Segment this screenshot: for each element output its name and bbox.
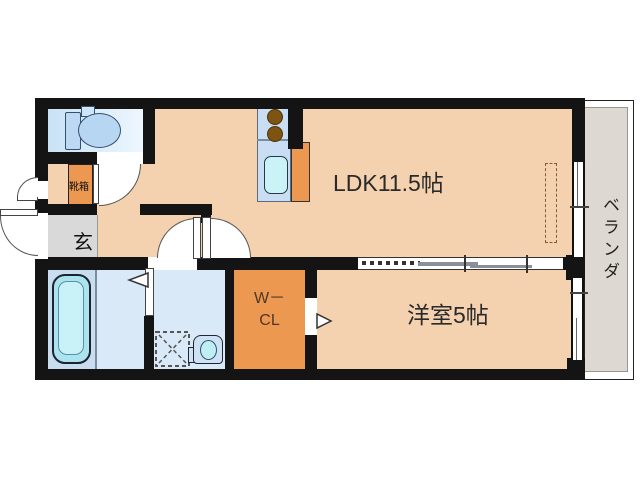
kitchen-sink-icon <box>264 156 288 194</box>
wall-segment <box>566 255 585 280</box>
ldk-label: LDK11.5帖 <box>333 164 444 198</box>
wall-segment <box>305 335 317 371</box>
wall-segment <box>572 98 585 164</box>
veranda: ベランダ <box>584 100 634 380</box>
kitchen-side-counter <box>291 142 310 202</box>
dashed-space-symbol <box>545 163 557 243</box>
wall-segment <box>567 358 585 380</box>
shoe-box: 靴箱 <box>68 164 93 207</box>
bathtub-icon <box>52 274 91 364</box>
floor-plan: W－ CL ベランダ 靴箱 <box>0 0 640 480</box>
ldk-door-leaf <box>202 217 211 259</box>
wall-segment <box>197 257 318 270</box>
washroom-doorway <box>148 257 197 270</box>
wcl-door-triangle-icon <box>314 312 334 330</box>
veranda-slab: ベランダ <box>585 107 628 372</box>
wall-segment <box>35 98 48 181</box>
wall-segment <box>35 259 48 380</box>
veranda-label: ベランダ <box>597 196 622 284</box>
front-door-leaf <box>0 209 38 216</box>
wall-segment <box>144 316 154 371</box>
toilet-doorway <box>97 152 143 164</box>
folding-door-triangle-icon <box>126 270 150 290</box>
genkan-label: 玄 <box>73 226 93 255</box>
front-door-swing-arc <box>0 216 38 256</box>
shoe-box-label: 靴箱 <box>69 178 91 193</box>
washroom-door-leaf <box>193 217 201 259</box>
bath-partition-line <box>95 268 97 372</box>
wall-segment <box>35 98 585 109</box>
wall-segment <box>143 98 155 164</box>
entry-upper-swing-arc <box>17 177 38 197</box>
wall-segment <box>315 257 359 270</box>
ldk-window <box>572 162 585 257</box>
washing-machine-space-icon <box>154 330 191 368</box>
wcl-label-line2: CL <box>234 310 305 332</box>
wall-segment <box>225 257 234 371</box>
wcl-label: W－ CL <box>234 288 305 331</box>
wall-segment <box>41 257 148 270</box>
western-room-window <box>571 278 584 360</box>
western-room-label: 洋室5帖 <box>407 296 489 330</box>
wall-segment <box>288 98 303 149</box>
sliding-door-symbol <box>358 257 563 270</box>
wcl-label-line1: W－ <box>234 288 305 310</box>
walk-in-closet: W－ CL <box>234 266 305 372</box>
wall-segment <box>35 152 97 164</box>
